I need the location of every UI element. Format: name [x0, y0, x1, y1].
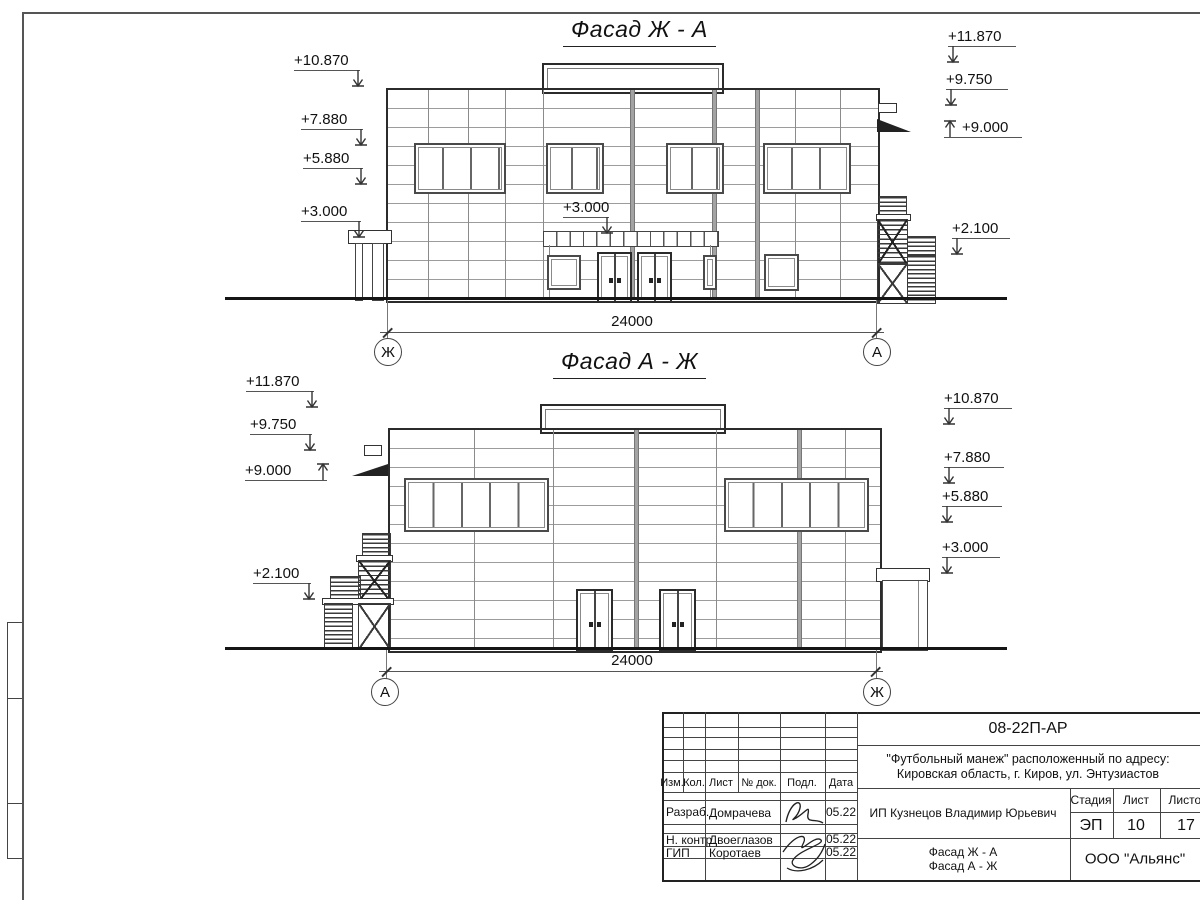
sidelight-window — [547, 255, 581, 290]
elevation-arrow-icon — [353, 128, 369, 152]
entrance-door — [637, 252, 672, 303]
elevation-value: +11.870 — [246, 373, 300, 390]
doc-number: 08-22П-АР — [988, 720, 1067, 738]
stair-flight-hatch — [324, 603, 353, 650]
panel-joint — [428, 90, 429, 298]
col-header-data: Дата — [829, 777, 853, 789]
facade-top-title: Фасад Ж - А — [563, 16, 716, 47]
elevation-mark: +10.870 — [944, 391, 1012, 409]
company-name: ООО "Альянс" — [1085, 851, 1185, 868]
titleblock-line — [857, 712, 858, 880]
titleblock-line — [1070, 812, 1200, 813]
elevation-mark: +5.880 — [942, 489, 1002, 507]
panel-joint — [553, 430, 554, 648]
elevation-value: +3.000 — [563, 199, 609, 216]
drawing-title-line2: Фасад А - Ж — [929, 859, 998, 873]
drawing-title-line1: Фасад Ж - А — [929, 845, 998, 859]
sheet-number: 10 — [1127, 817, 1145, 835]
axis-letter: А — [380, 684, 390, 701]
row-role: ГИП — [666, 846, 690, 860]
panel-joint — [716, 430, 717, 648]
row-date: 05.22 — [826, 805, 856, 819]
elevation-arrow-icon — [941, 466, 957, 490]
axis-letter: Ж — [381, 344, 395, 361]
elevation-value: +9.750 — [946, 71, 992, 88]
elevation-value: +10.870 — [294, 52, 349, 69]
elevation-mark: +11.870 — [246, 374, 314, 392]
frame-margin-divider — [7, 803, 22, 804]
elevation-arrow-icon — [301, 582, 317, 606]
axis-letter: Ж — [870, 684, 884, 701]
row-role: Разраб. — [666, 805, 709, 819]
elevation-value: +9.750 — [250, 416, 296, 433]
elevation-arrow-icon — [302, 433, 318, 457]
titleblock-line — [662, 749, 857, 750]
signature — [782, 796, 826, 826]
titleblock-line — [662, 737, 857, 738]
window-band — [724, 478, 869, 532]
roof-tab — [878, 103, 897, 113]
elevation-value: +2.100 — [952, 220, 998, 237]
window-band — [404, 478, 549, 532]
elevation-mark: +3.000 — [942, 540, 1000, 558]
col-header-podp: Подл. — [787, 777, 817, 789]
dimension-value: 24000 — [611, 313, 653, 330]
panel-joint — [797, 430, 802, 648]
project-address-line2: Кировская область, г. Киров, ул. Энтузиа… — [897, 767, 1159, 781]
elevation-value: +10.870 — [944, 390, 999, 407]
exit-door — [576, 589, 613, 652]
panel-joint — [474, 430, 475, 648]
canopy-wedge-icon — [352, 464, 388, 478]
elevation-value: +7.880 — [301, 111, 347, 128]
sheets-label: Листов — [1169, 793, 1200, 807]
titleblock-line — [857, 788, 1200, 789]
elevation-mark: +9.000 — [245, 463, 327, 481]
sheets-total: 17 — [1177, 817, 1195, 835]
elevation-arrow-icon — [939, 505, 955, 529]
project-address-line1: "Футбольный манеж" расположенный по адре… — [886, 752, 1169, 766]
signature — [779, 830, 829, 876]
elevation-value: +5.880 — [942, 488, 988, 505]
axis-bubble: А — [371, 678, 399, 706]
exit-door — [659, 589, 696, 652]
titleblock-line — [662, 824, 857, 825]
stair-braced-panel — [358, 560, 391, 602]
titleblock-line — [1113, 788, 1114, 838]
elevation-arrow-icon — [353, 167, 369, 191]
elevation-value: +9.000 — [962, 119, 1008, 136]
elevation-value: +11.870 — [948, 28, 1002, 45]
row-name: Домрачева — [709, 806, 771, 820]
axis-bubble: Ж — [863, 678, 891, 706]
titleblock-line — [662, 727, 857, 728]
window — [546, 143, 604, 194]
elevation-value: +9.000 — [245, 462, 291, 479]
porch-post — [355, 243, 363, 301]
elevation-mark: +2.100 — [952, 221, 1010, 239]
elevation-mark: +10.870 — [294, 53, 360, 71]
panel-joint — [755, 90, 760, 298]
elevation-arrow-icon — [939, 556, 955, 580]
frame-margin-line — [7, 622, 8, 858]
porch-body — [882, 580, 928, 651]
titleblock-line — [662, 712, 664, 880]
elevation-mark: +11.870 — [948, 29, 1016, 47]
frame-top-line — [22, 12, 1200, 14]
panel-joint — [634, 430, 639, 648]
axis-letter: А — [872, 344, 882, 361]
elevation-mark: +2.100 — [253, 566, 311, 584]
panel-joint — [505, 90, 506, 298]
elevation-mark: +3.000 — [301, 204, 361, 222]
canopy-wedge-icon — [877, 119, 911, 134]
window — [666, 143, 724, 194]
elevation-arrow-icon — [315, 457, 331, 481]
titleblock-line — [857, 838, 1200, 839]
elevation-arrow-icon — [949, 237, 965, 261]
row-date: 05.22 — [826, 845, 856, 859]
stage-label: Стадия — [1071, 793, 1112, 807]
elevation-arrow-icon — [350, 69, 366, 93]
client-name: ИП Кузнецов Владимир Юрьевич — [870, 806, 1057, 820]
elevation-arrow-icon — [941, 407, 957, 431]
axis-bubble: Ж — [374, 338, 402, 366]
frame-margin-divider — [7, 698, 22, 699]
entrance-canopy — [543, 231, 719, 247]
axis-bubble: А — [863, 338, 891, 366]
row-date: 05.22 — [826, 832, 856, 846]
elevation-arrow-icon — [304, 390, 320, 414]
titleblock-line — [662, 800, 857, 801]
elevation-mark: +9.750 — [946, 72, 1008, 90]
dimension-line — [379, 671, 883, 672]
stair-flight-hatch — [907, 236, 936, 257]
titleblock-line — [662, 760, 857, 761]
panel-joint — [840, 90, 841, 298]
elevation-mark: +9.000 — [944, 120, 1022, 138]
col-header-izm: Изм. — [660, 777, 684, 789]
titleblock-line — [705, 712, 706, 880]
facade-bottom-title: Фасад А - Ж — [553, 348, 706, 379]
elevation-mark: +5.880 — [303, 151, 363, 169]
elevation-arrow-icon — [599, 216, 615, 240]
dimension-value: 24000 — [611, 652, 653, 669]
elevation-mark: +9.750 — [250, 417, 312, 435]
panel-joint — [543, 90, 544, 298]
frame-left-line — [22, 12, 24, 900]
elevation-arrow-icon — [943, 88, 959, 112]
titleblock-line — [857, 745, 1200, 746]
drawing-sheet: Фасад Ж - А 24000 Ж А +10.870 +7.880 — [0, 0, 1200, 900]
window-small — [764, 254, 799, 291]
frame-margin-divider — [7, 622, 22, 623]
elevation-arrow-icon — [351, 220, 367, 244]
porch-post — [372, 243, 384, 301]
frame-margin-divider — [7, 858, 22, 859]
row-name: Двоеглазов — [709, 833, 773, 847]
elevation-value: +7.880 — [944, 449, 990, 466]
elevation-value: +3.000 — [942, 539, 988, 556]
porch-divider-line — [918, 581, 919, 648]
panel-joint — [845, 430, 846, 648]
elevation-arrow-icon — [942, 114, 958, 138]
elevation-arrow-icon — [945, 45, 961, 69]
sidelight-window — [703, 255, 717, 290]
titleblock-line — [662, 712, 1200, 714]
elevation-mark-center: +3.000 — [563, 200, 609, 218]
titleblock-line — [662, 772, 857, 773]
stage-value: ЭП — [1080, 817, 1103, 835]
elevation-value: +3.000 — [301, 203, 347, 220]
panel-joint — [468, 90, 469, 298]
elevation-value: +5.880 — [303, 150, 349, 167]
col-header-list: Лист — [709, 777, 733, 789]
dimension-line — [380, 332, 884, 333]
elevation-value: +2.100 — [253, 565, 299, 582]
elevation-mark: +7.880 — [944, 450, 1004, 468]
sheet-label: Лист — [1123, 793, 1149, 807]
col-header-kol: Кол. — [683, 777, 705, 789]
titleblock-line — [662, 880, 1200, 882]
titleblock-line — [1160, 788, 1161, 838]
ground-line — [225, 297, 1007, 300]
row-name: Коротаев — [709, 846, 761, 860]
titleblock-line — [662, 792, 857, 793]
window — [414, 143, 506, 194]
col-header-doc: № док. — [741, 777, 776, 789]
ground-line — [225, 647, 1007, 650]
titleblock-line — [738, 712, 739, 792]
entrance-door — [597, 252, 632, 303]
roof-tab — [364, 445, 382, 456]
stair-braced-panel — [877, 219, 908, 265]
elevation-mark: +7.880 — [301, 112, 363, 130]
window — [763, 143, 851, 194]
stair-x-brace — [358, 603, 391, 650]
